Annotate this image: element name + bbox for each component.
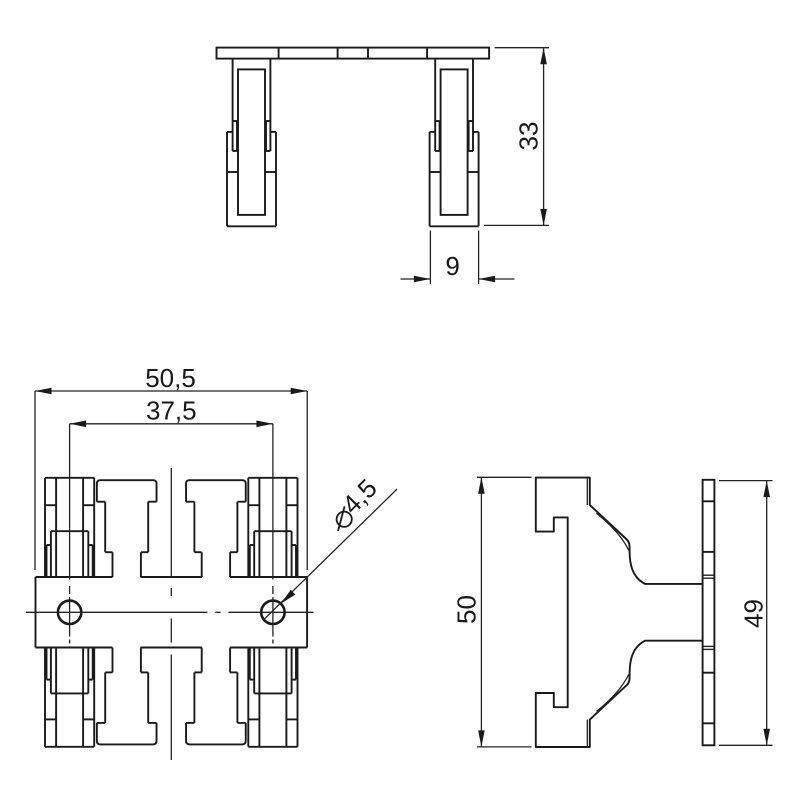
- svg-text:50,5: 50,5: [145, 363, 196, 393]
- svg-text:50: 50: [452, 595, 482, 624]
- svg-text:49: 49: [739, 599, 769, 628]
- svg-text:33: 33: [514, 122, 544, 151]
- svg-text:9: 9: [445, 251, 459, 281]
- svg-text:37,5: 37,5: [146, 396, 197, 426]
